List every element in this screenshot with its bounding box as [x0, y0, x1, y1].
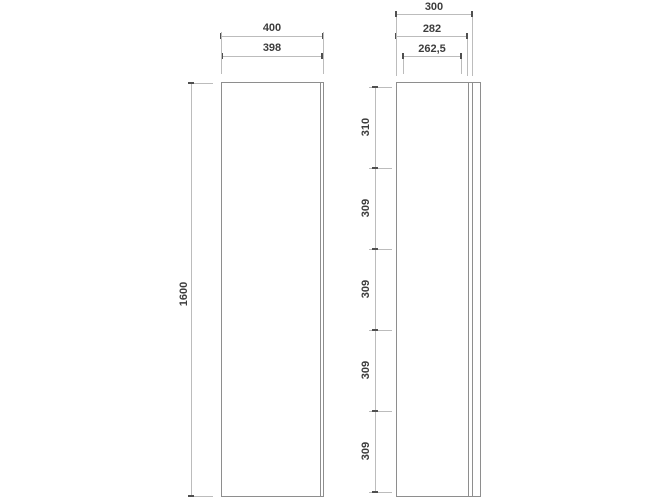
side-body-depth-dim-line [396, 36, 468, 37]
dim-tick [372, 167, 378, 169]
side-depth-dim-label: 300 [404, 1, 464, 13]
dim-tick [372, 491, 378, 493]
front-door-width-dim-label: 398 [242, 42, 302, 54]
side-view-door-line-back [468, 82, 469, 497]
shelf-spacing-dim-line [375, 87, 376, 492]
side-body-depth-dim-label: 282 [402, 23, 462, 35]
shelf-spacing-label-4: 309 [360, 421, 372, 481]
dim-tick [188, 495, 194, 497]
extension-line [221, 32, 222, 74]
front-height-dim-line [191, 84, 192, 496]
side-inner-depth-dim-line [403, 56, 462, 57]
dim-tick [372, 248, 378, 250]
shelf-spacing-label-1: 309 [360, 178, 372, 238]
front-width-dim-line [221, 36, 324, 37]
dim-tick [372, 86, 378, 88]
technical-drawing: 400 398 1600 300 282 262,5 [0, 0, 670, 504]
shelf-spacing-label-2: 309 [360, 259, 372, 319]
shelf-spacing-label-0: 310 [360, 97, 372, 157]
extension-line [461, 59, 462, 74]
dim-tick [372, 410, 378, 412]
extension-line [403, 59, 404, 74]
front-width-dim-label: 400 [242, 22, 302, 34]
front-door-width-dim-line [222, 56, 322, 57]
front-view-outline [221, 82, 324, 497]
extension-line [467, 39, 468, 76]
extension-line [472, 17, 473, 76]
side-inner-depth-dim-label: 262,5 [402, 43, 462, 55]
dim-tick [372, 329, 378, 331]
side-depth-dim-line [396, 14, 473, 15]
extension-line [323, 32, 324, 74]
front-height-dim-label: 1600 [178, 264, 190, 324]
extension-line [396, 17, 397, 76]
dim-tick [188, 82, 194, 84]
shelf-spacing-label-3: 309 [360, 340, 372, 400]
front-view-door-gap-line [320, 82, 321, 497]
side-view-door-line-front [472, 82, 473, 497]
